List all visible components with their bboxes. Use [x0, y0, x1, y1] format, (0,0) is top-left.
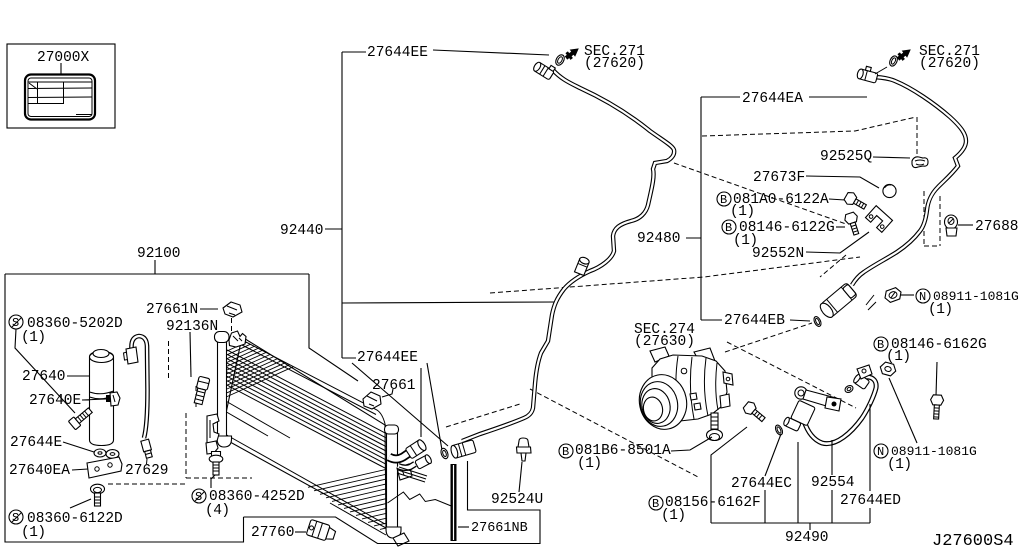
svg-text:27661NB: 27661NB [471, 521, 528, 536]
svg-text:92490: 92490 [785, 530, 829, 546]
svg-text:27644EE: 27644EE [357, 350, 418, 366]
svg-text:(27620): (27620) [919, 56, 980, 72]
svg-text:( 1 ): ( 1 ) [21, 525, 44, 541]
svg-text:( 1 ): ( 1 ) [886, 349, 909, 365]
svg-text:N: N [877, 445, 884, 459]
svg-text:B: B [652, 497, 659, 511]
svg-text:( 1 ): ( 1 ) [577, 456, 600, 472]
svg-text:27644EB: 27644EB [724, 313, 785, 329]
svg-text:27640E: 27640E [29, 393, 81, 409]
svg-text:27644ED: 27644ED [840, 493, 901, 509]
svg-text:B: B [877, 338, 884, 352]
svg-text:92480: 92480 [637, 231, 681, 247]
svg-text:B: B [562, 445, 569, 459]
svg-text:27644E: 27644E [10, 435, 62, 451]
svg-text:B: B [725, 221, 732, 235]
svg-text:27673F: 27673F [753, 170, 805, 186]
svg-text:92552N: 92552N [752, 246, 804, 262]
svg-text:27640EA: 27640EA [9, 463, 70, 479]
svg-text:27760: 27760 [251, 525, 295, 541]
svg-text:( 1 ): ( 1 ) [887, 457, 910, 473]
svg-text:(27620): (27620) [584, 56, 645, 72]
svg-text:B: B [720, 193, 727, 207]
svg-text:27629: 27629 [125, 463, 169, 479]
svg-text:J27600S4: J27600S4 [932, 532, 1014, 551]
svg-text:( 4 ): ( 4 ) [205, 503, 228, 519]
svg-text:27688: 27688 [975, 219, 1019, 235]
svg-text:( 1 ): ( 1 ) [730, 204, 753, 220]
svg-text:27661N: 27661N [146, 302, 198, 318]
svg-text:( 1 ): ( 1 ) [21, 330, 44, 346]
svg-text:( 1 ): ( 1 ) [928, 302, 951, 318]
svg-text:27644EC: 27644EC [731, 476, 792, 492]
svg-text:92524U: 92524U [491, 492, 543, 508]
svg-text:92100: 92100 [137, 246, 181, 262]
svg-text:( 1 ): ( 1 ) [661, 508, 684, 524]
svg-text:27640: 27640 [22, 369, 66, 385]
svg-text:N: N [919, 290, 926, 304]
svg-text:27644EA: 27644EA [742, 91, 803, 107]
svg-text:92554: 92554 [811, 475, 855, 491]
svg-text:27661: 27661 [372, 378, 416, 394]
svg-text:92440: 92440 [280, 223, 324, 239]
svg-text:92525Q: 92525Q [820, 149, 873, 165]
svg-text:92136N: 92136N [166, 319, 218, 335]
svg-text:27000X: 27000X [37, 50, 90, 66]
svg-text:27644EE: 27644EE [367, 45, 428, 61]
